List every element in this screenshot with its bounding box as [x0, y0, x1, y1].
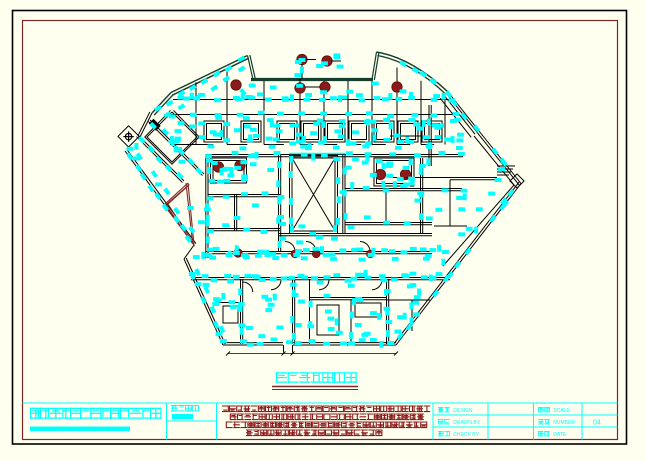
- svg-text:DATE: DATE: [553, 432, 567, 438]
- svg-text:SCALE: SCALE: [553, 408, 570, 414]
- svg-text:NUMBER: NUMBER: [553, 420, 575, 426]
- svg-text:DRAWN BY: DRAWN BY: [453, 420, 480, 426]
- svg-text:04: 04: [593, 420, 601, 427]
- svg-text:DESIGN: DESIGN: [453, 408, 473, 414]
- svg-text:CHECK BY: CHECK BY: [453, 432, 479, 438]
